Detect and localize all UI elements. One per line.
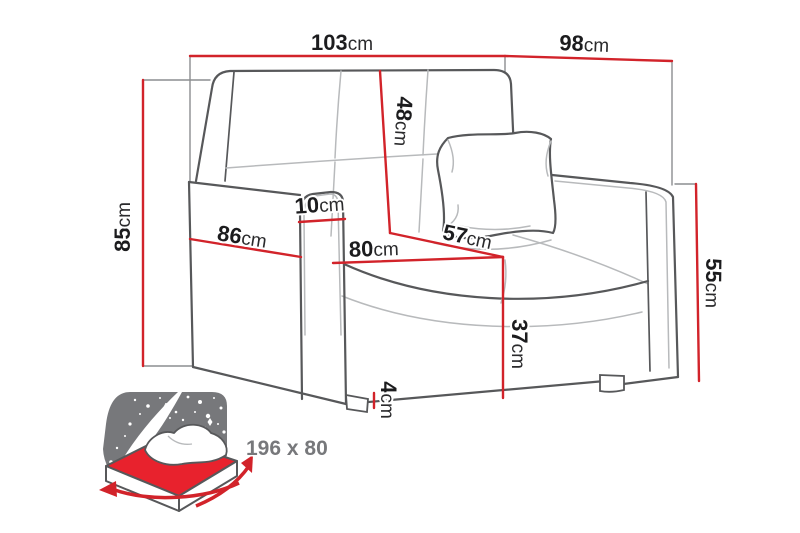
dimension-label-leg-height: 4cm [376,381,401,419]
sofa-dimension-diagram: 103cm 98cm 85cm 86cm 10cm 80cm 57cm 48cm… [0,0,800,533]
sleeping-area-label: 196 x 80 [246,437,328,460]
diagram-canvas: 103cm 98cm 85cm 86cm 10cm 80cm 57cm 48cm… [0,0,800,533]
bed-sleeping-icon: 196 x 80 [99,392,328,511]
dimension-label-seat-height: 37cm [507,319,532,369]
dimension-label-side-width: 98cm [559,30,610,57]
dimension-label-total-height: 85cm [110,202,135,252]
length-arrowhead [99,481,117,497]
dimension-label-total-width: 103cm [311,30,373,55]
dimension-label-armrest-height: 55cm [701,258,727,308]
front-left-leg [346,395,368,412]
dimension-label-seat-width: 80cm [348,235,399,262]
dimension-line-armrest-height [696,184,699,381]
front-right-leg [600,375,624,392]
dimension-line-side-width [505,56,672,61]
